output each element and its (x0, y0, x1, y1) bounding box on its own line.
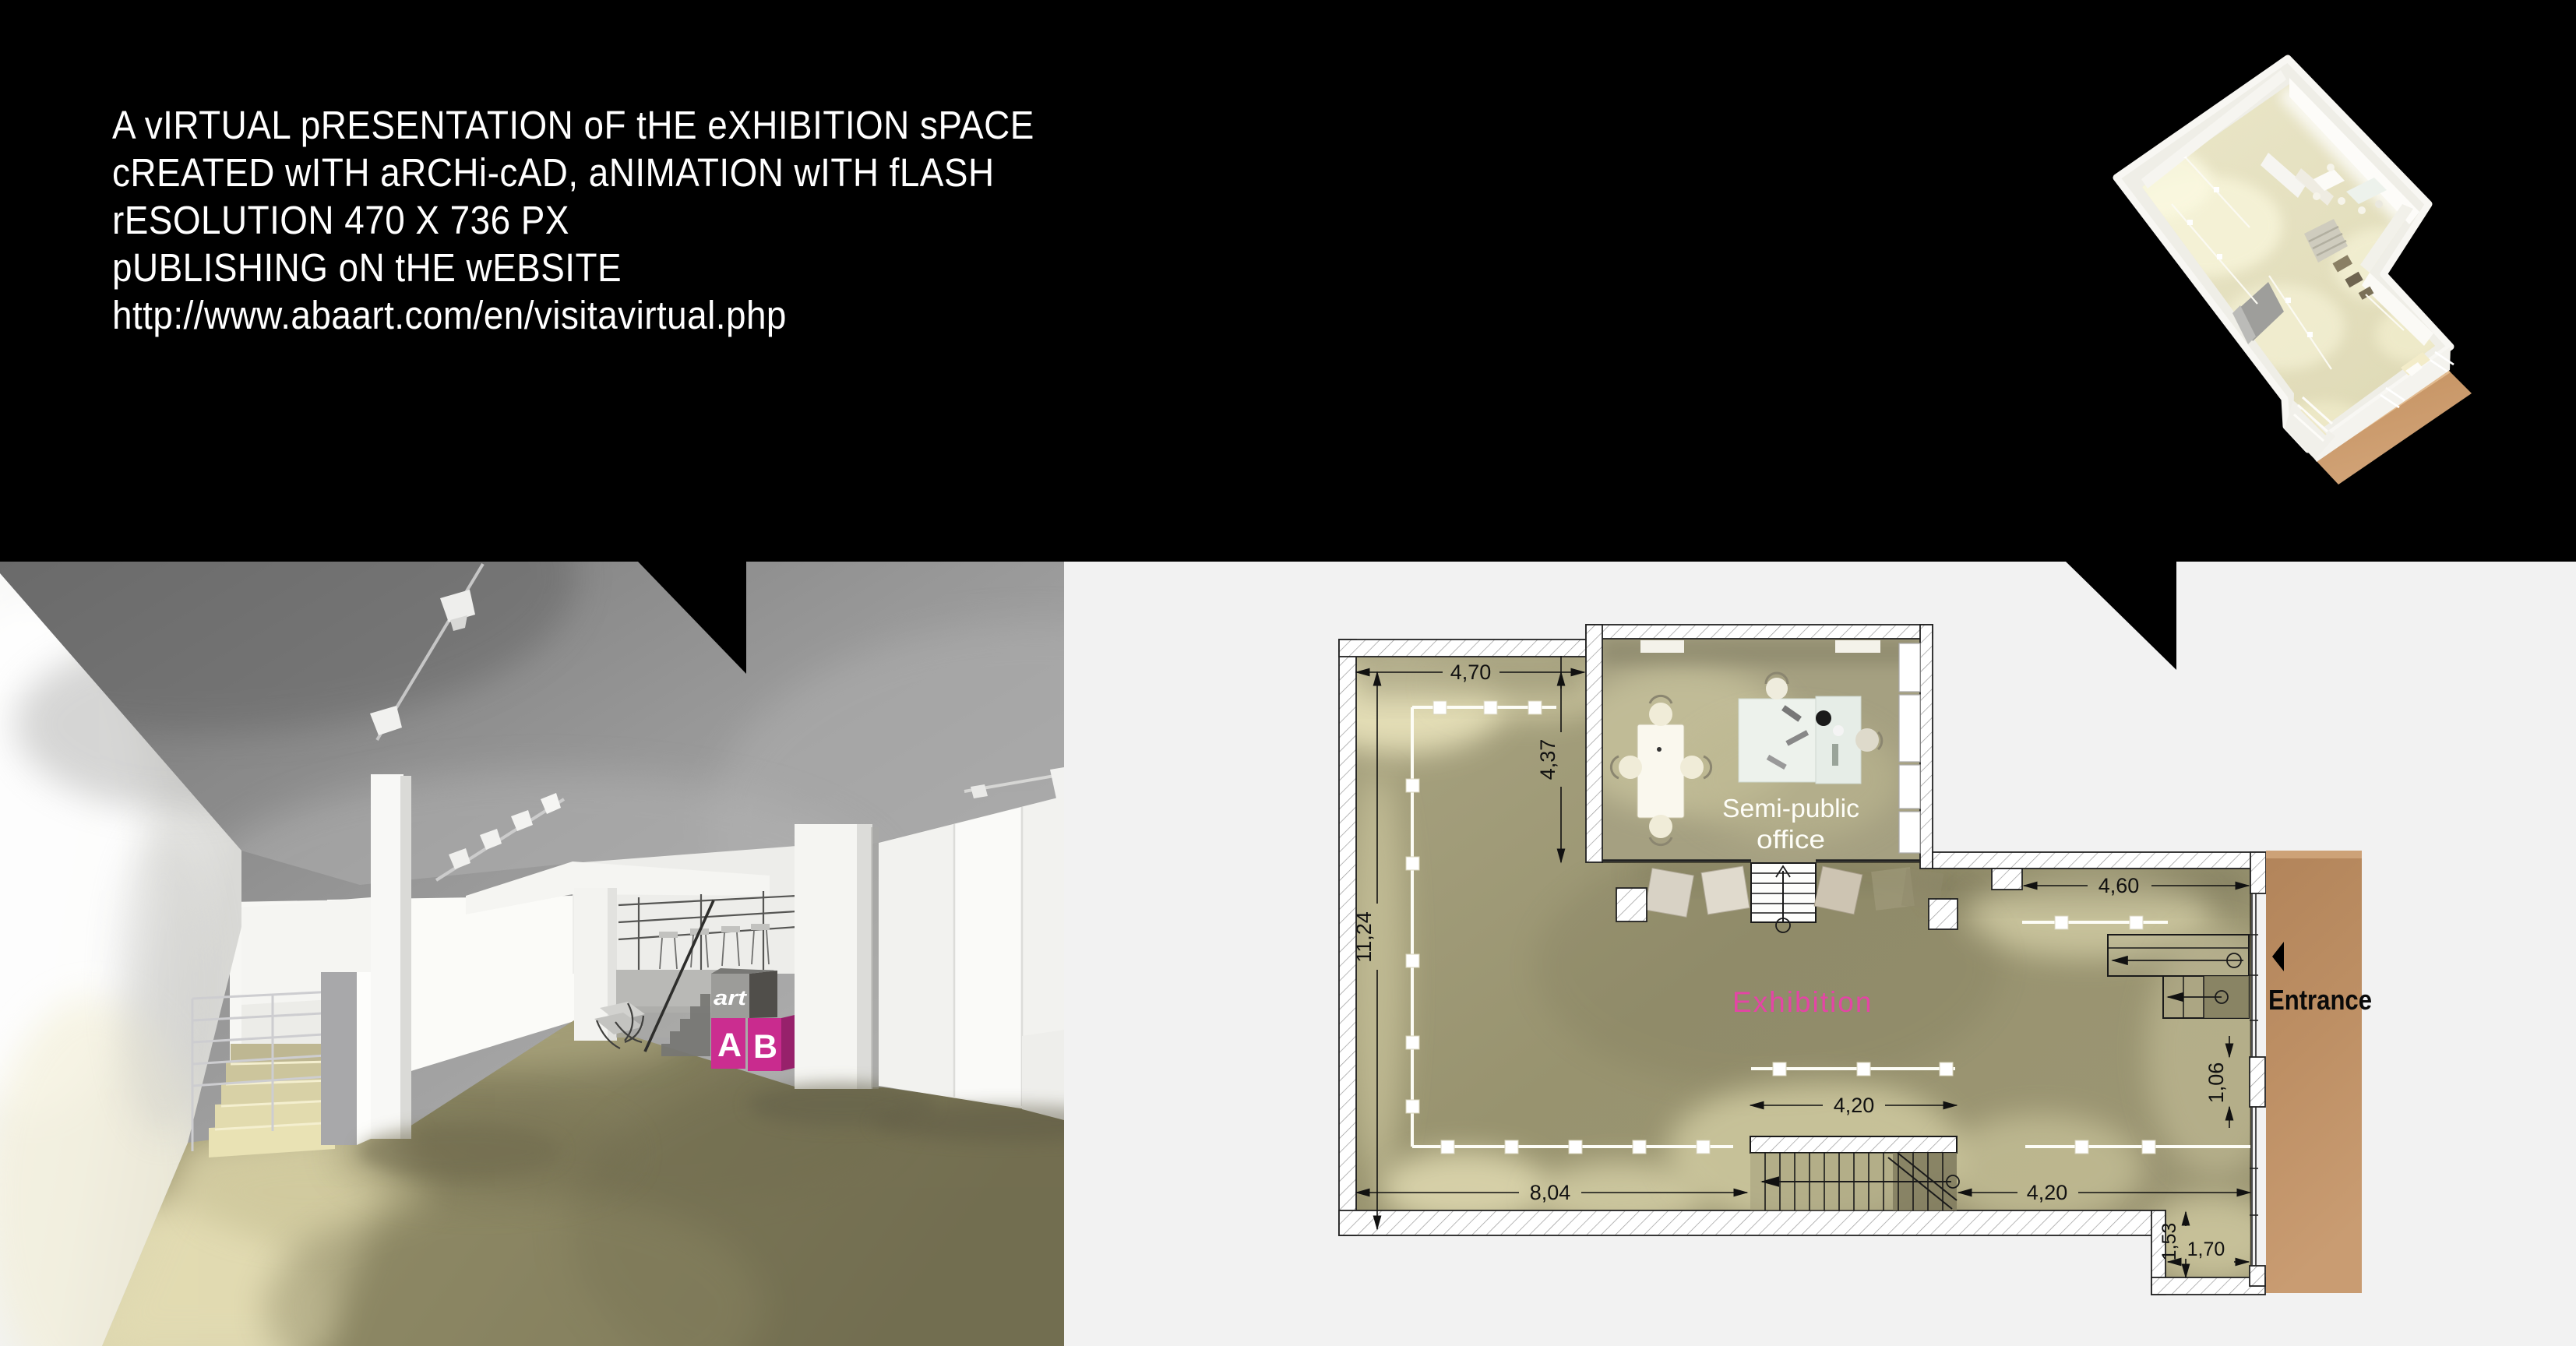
svg-text:art: art (714, 986, 747, 1010)
svg-text:8,04: 8,04 (1530, 1181, 1571, 1204)
svg-text:4,60: 4,60 (2099, 874, 2140, 897)
svg-text:4,37: 4,37 (1536, 739, 1559, 780)
svg-text:11,24: 11,24 (1352, 911, 1376, 963)
svg-text:4,20: 4,20 (1834, 1094, 1875, 1117)
svg-text:1,06: 1,06 (2204, 1062, 2228, 1104)
svg-text:Entrance: Entrance (2268, 984, 2372, 1016)
svg-text:Semi-public: Semi-public (1722, 794, 1859, 823)
svg-text:1,70: 1,70 (2187, 1239, 2225, 1260)
svg-text:4,20: 4,20 (2027, 1181, 2068, 1204)
svg-text:office: office (1757, 825, 1825, 854)
svg-text:4,70: 4,70 (1450, 661, 1492, 684)
svg-text:B: B (753, 1028, 777, 1066)
svg-text:1,53: 1,53 (2158, 1223, 2180, 1261)
svg-text:Exhibition: Exhibition (1732, 986, 1873, 1018)
svg-text:A: A (717, 1027, 742, 1064)
